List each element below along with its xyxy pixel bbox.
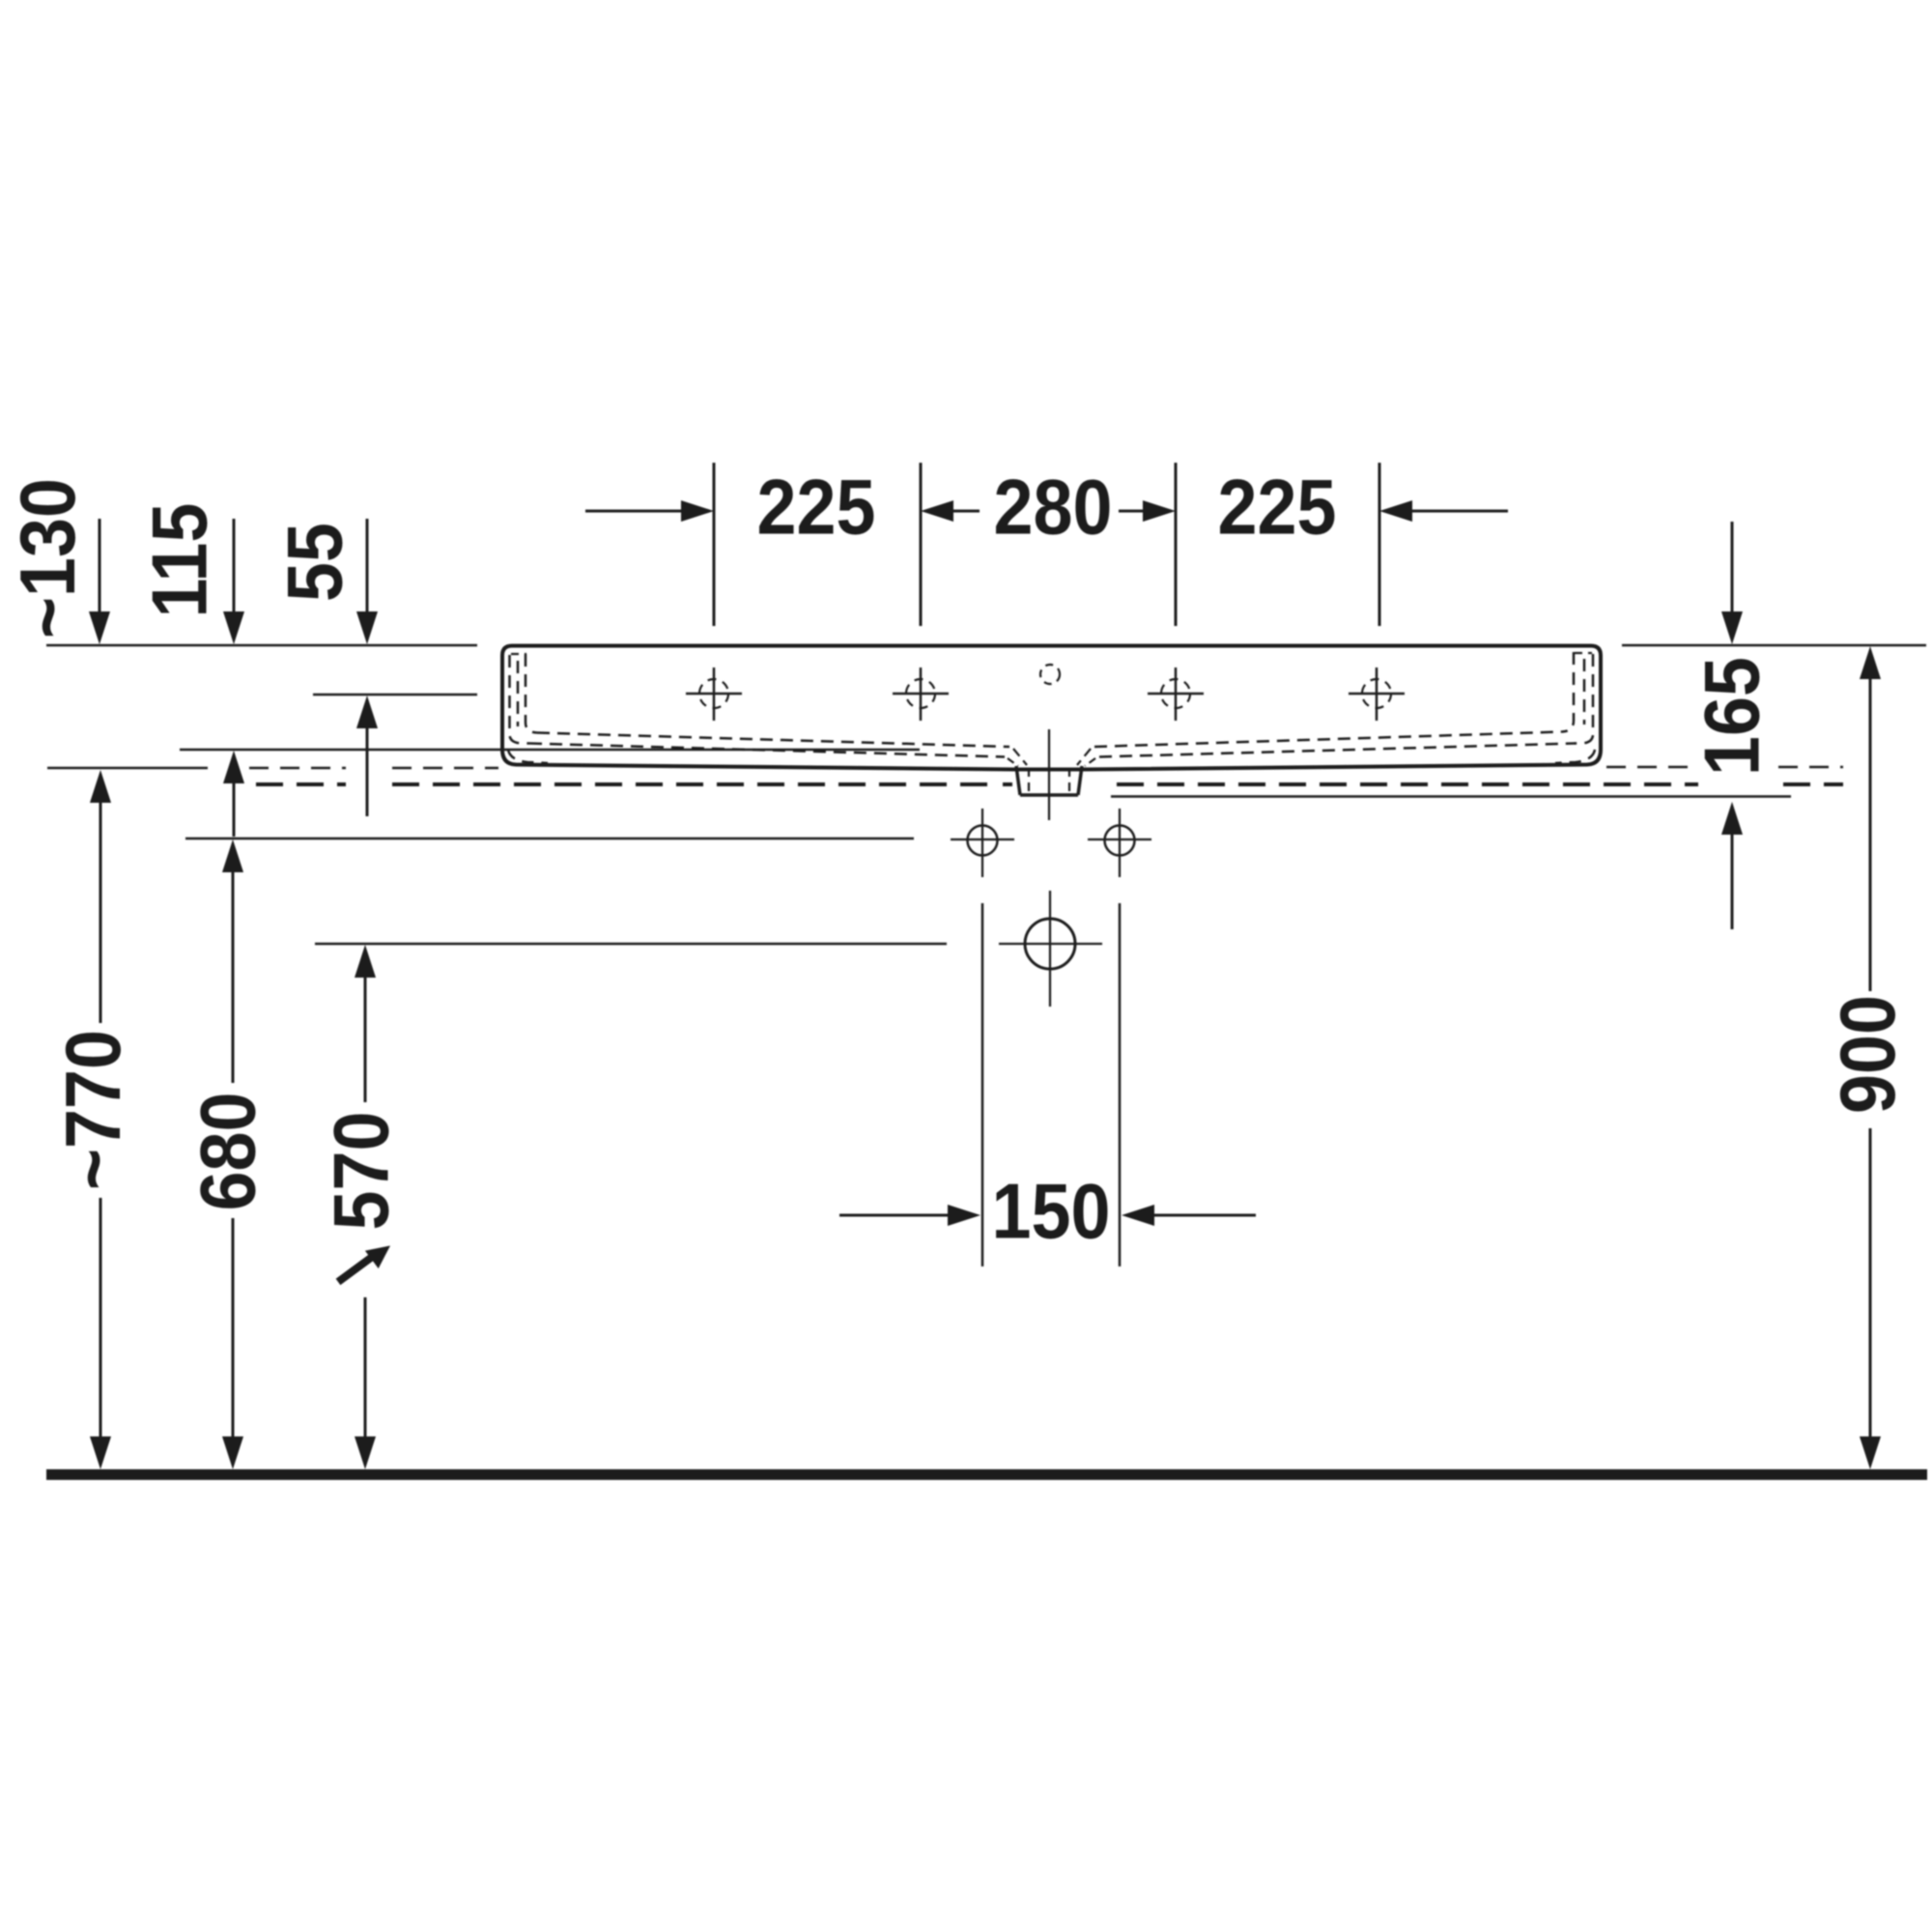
- svg-text:115: 115: [137, 503, 224, 618]
- svg-text:~130: ~130: [5, 478, 92, 639]
- svg-text:165: 165: [1690, 657, 1776, 776]
- svg-text:280: 280: [994, 465, 1113, 552]
- svg-text:~770: ~770: [50, 1030, 137, 1190]
- svg-text:55: 55: [272, 523, 359, 602]
- svg-text:900: 900: [1825, 995, 1912, 1114]
- svg-text:150: 150: [992, 1169, 1111, 1256]
- svg-text:680: 680: [185, 1093, 272, 1211]
- svg-text:570: 570: [319, 1112, 406, 1231]
- svg-text:225: 225: [1218, 465, 1337, 552]
- svg-text:225: 225: [757, 465, 876, 552]
